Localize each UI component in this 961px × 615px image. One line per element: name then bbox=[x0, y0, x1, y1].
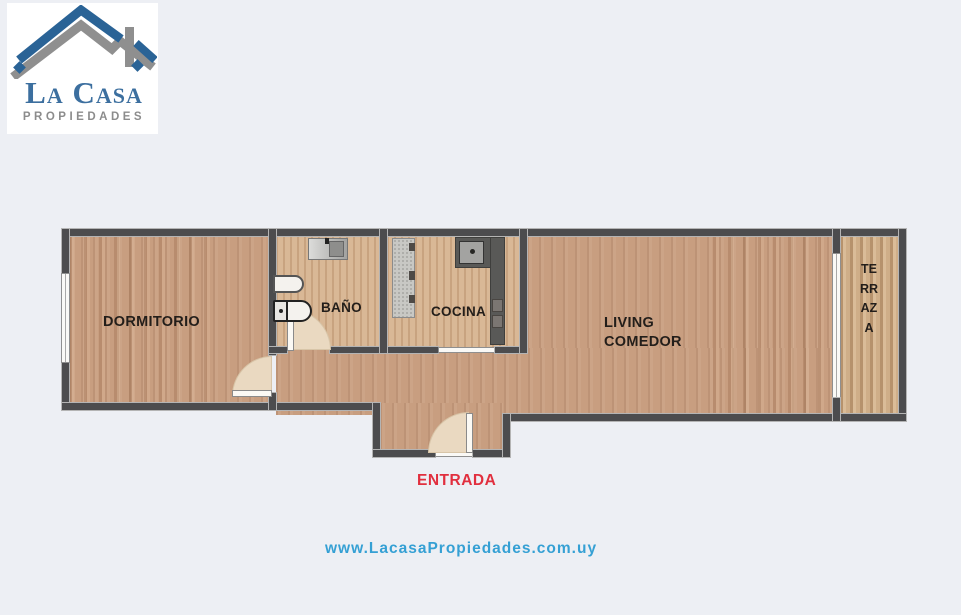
kitchen-appliance-1 bbox=[409, 243, 415, 251]
website-url: www.LacasaPropiedades.com.uy bbox=[325, 540, 597, 558]
bidet bbox=[273, 275, 304, 293]
terraza-label: TERRAZA bbox=[859, 260, 879, 338]
wall-top bbox=[62, 229, 906, 236]
kitchen-sink-drain-icon bbox=[470, 249, 475, 254]
kitchen-drawer-1 bbox=[492, 299, 503, 312]
kitchen-appliance-2 bbox=[409, 271, 415, 280]
bathroom-sink-basin bbox=[329, 241, 344, 257]
wall-bottom-living bbox=[503, 414, 906, 421]
toilet-bowl bbox=[286, 300, 312, 322]
wall-bottom-dormitorio bbox=[62, 403, 380, 410]
wall-right bbox=[899, 229, 906, 421]
wall-cocina-living bbox=[520, 229, 527, 353]
wall-entrada-bottom-left bbox=[373, 450, 435, 457]
wall-living-terraza-top bbox=[833, 229, 840, 253]
bathroom-faucet-icon bbox=[325, 238, 329, 244]
living-floor-planks bbox=[713, 236, 833, 415]
wall-living-terraza-bottom bbox=[833, 398, 840, 421]
living-label: LIVING COMEDOR bbox=[604, 314, 682, 352]
kitchen-drawer-2 bbox=[492, 315, 503, 328]
wall-entrada-right bbox=[503, 414, 510, 457]
entrada-label: ENTRADA bbox=[417, 472, 496, 490]
dormitorio-door-leaf bbox=[232, 390, 272, 397]
cocina-opening bbox=[438, 347, 495, 353]
living-label-line1: LIVING bbox=[604, 314, 682, 333]
entrada-door-leaf bbox=[466, 413, 473, 453]
cocina-label: COCINA bbox=[431, 304, 486, 319]
floorplan: DORMITORIO BAÑO COCINA LIVING COMEDOR TE… bbox=[0, 0, 961, 615]
wall-bano-cocina bbox=[380, 229, 387, 353]
terraza-sliding-door bbox=[832, 253, 841, 398]
kitchen-appliance-3 bbox=[409, 295, 415, 303]
kitchen-counter-right bbox=[490, 237, 505, 345]
wall-bano-bottom-left bbox=[269, 347, 287, 353]
dormitorio-window bbox=[61, 273, 70, 363]
bano-label: BAÑO bbox=[321, 300, 362, 315]
toilet-flush-icon bbox=[279, 309, 283, 313]
wall-entrada-left bbox=[373, 403, 380, 457]
living-label-line2: COMEDOR bbox=[604, 333, 682, 352]
dormitorio-label: DORMITORIO bbox=[103, 314, 200, 330]
